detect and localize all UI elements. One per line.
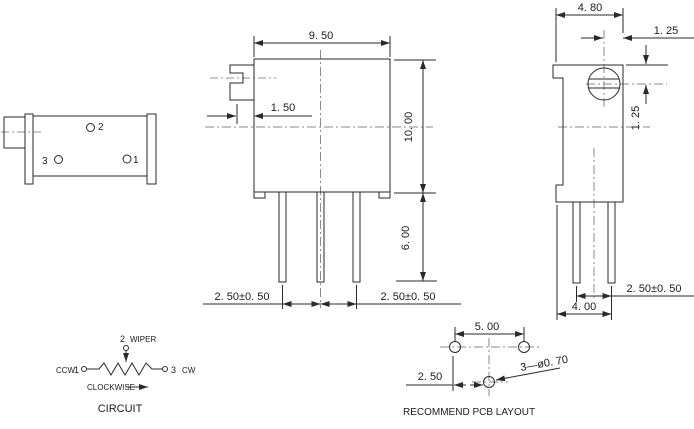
dim-hole-span-label: 5. 00 xyxy=(475,321,499,333)
circuit-pin2-label: 2 xyxy=(120,334,125,344)
left-end-cap xyxy=(25,114,33,184)
ccw-label: CCW xyxy=(56,366,76,375)
right-end-cap xyxy=(147,114,156,184)
pcb-layout-title: RECOMMEND PCB LAYOUT xyxy=(403,407,535,418)
right-standoff-foot xyxy=(379,192,390,198)
dim-depth-label: 4. 80 xyxy=(578,2,602,14)
dim-pitch-right-label: 2. 50±0. 50 xyxy=(381,291,436,303)
dim-height-label: 10. 00 xyxy=(403,112,415,143)
cw-label: CW xyxy=(182,366,196,375)
resistor-zigzag xyxy=(87,363,162,375)
pin-back xyxy=(608,202,615,283)
cw-terminal xyxy=(163,367,168,372)
pcb-layout: 5. 00 2. 50 3—ø0. 70 RECOMMEND PCB LAYOU… xyxy=(403,321,569,418)
circuit-title: CIRCUIT xyxy=(98,403,143,415)
ccw-terminal xyxy=(82,367,87,372)
slotted-shaft xyxy=(230,65,254,100)
pin1-label: 1 xyxy=(133,155,139,166)
right-view: 4. 80 1. 25 1. 25 2. 50±0. 50 4. 00 xyxy=(553,2,694,320)
pin-1 xyxy=(353,192,360,282)
dim-shaft-label: 1. 50 xyxy=(271,102,295,114)
wiper-terminal xyxy=(124,346,129,351)
dim-screw-offset-h-label: 1. 25 xyxy=(654,25,678,37)
dim-pitch-left-label: 2. 50±0. 50 xyxy=(215,291,270,303)
dim-pin-row-label: 4. 00 xyxy=(572,301,596,313)
dim-pin-pitch-label: 2. 50±0. 50 xyxy=(627,283,682,295)
left-standoff-foot xyxy=(254,192,265,198)
pin3-label: 3 xyxy=(42,156,48,167)
circuit-pin3-label: 3 xyxy=(171,365,176,375)
trimmer-potentiometer-drawing: 2 3 1 9. 50 1. 50 10. 00 xyxy=(0,0,694,429)
pin-front xyxy=(573,202,580,283)
dim-width-label: 9. 50 xyxy=(309,30,333,42)
pin2-hole xyxy=(87,124,95,132)
circuit-diagram: 2 WIPER CCW 1 3 CW CLOCKWISE CIRCUIT xyxy=(56,334,196,415)
dim-hole-offset-label: 2. 50 xyxy=(418,371,442,383)
pin1-hole xyxy=(123,155,131,163)
pin3-hole xyxy=(55,156,63,164)
circuit-pin1-label: 1 xyxy=(74,365,79,375)
technical-drawing-page: 2 3 1 9. 50 1. 50 10. 00 xyxy=(0,0,694,429)
dim-pin-length-label: 6. 00 xyxy=(400,226,412,250)
pin2-label: 2 xyxy=(98,122,104,133)
side-view: 2 3 1 xyxy=(1,114,156,184)
pin-3 xyxy=(279,192,286,282)
body-outline xyxy=(254,59,390,192)
front-view: 9. 50 1. 50 10. 00 6. 00 2. 50±0. 50 2. … xyxy=(203,30,461,309)
dim-screw-offset-v-label: 1. 25 xyxy=(630,106,642,130)
wiper-label: WIPER xyxy=(130,335,156,344)
